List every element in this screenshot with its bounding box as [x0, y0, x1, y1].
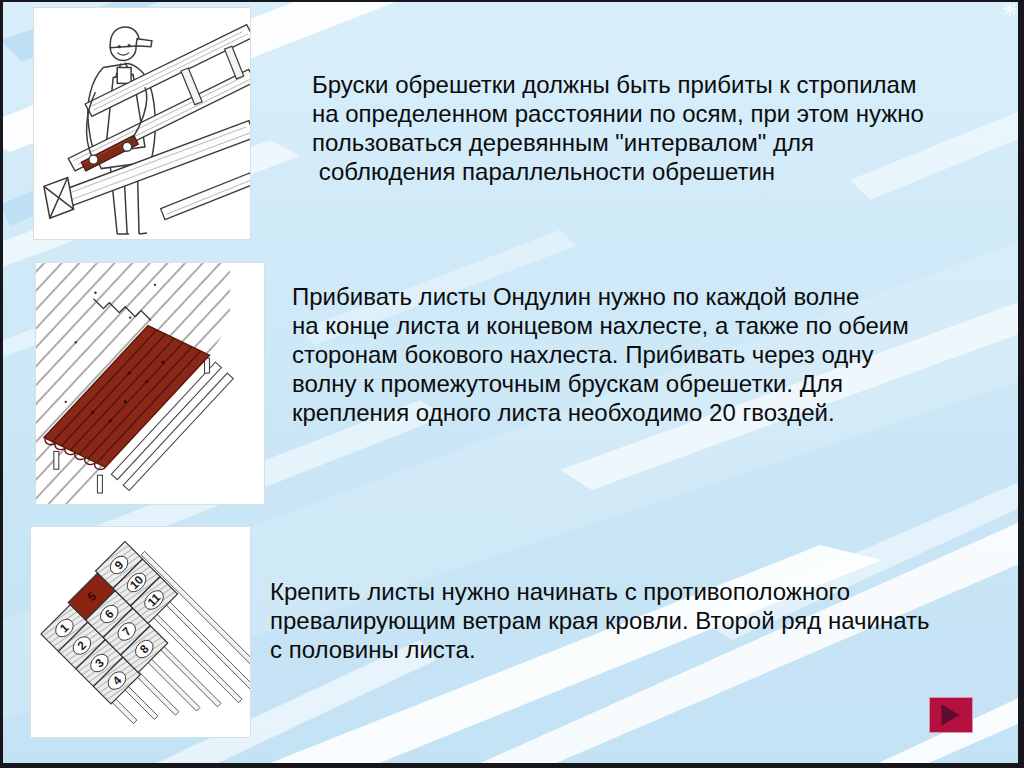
paragraph-batten-spacing: Бруски обрешетки должны быть прибиты к с…	[312, 70, 992, 186]
sheet-order-illustration: 1 2 3 4 5 6 7 8 9 10 11	[30, 526, 251, 738]
next-arrow-icon	[930, 698, 972, 732]
slide-border-left	[0, 0, 3, 768]
slide-border-bottom	[0, 763, 1024, 768]
worker-illustration	[33, 7, 251, 240]
paragraph-fixing-order: Крепить листы нужно начинать с противопо…	[270, 577, 990, 664]
ondulin-sheet-illustration	[35, 262, 265, 505]
slide-border-top	[0, 0, 1024, 2]
next-slide-button[interactable]	[929, 697, 973, 733]
sparkle-icon	[1002, 1, 1018, 17]
worker-placing-interval-board-drawing	[34, 8, 250, 239]
presentation-slide: 1 2 3 4 5 6 7 8 9 10 11 Бруски обрешетки…	[0, 0, 1024, 768]
paragraph-nailing-rules: Прибивать листы Ондулин нужно по каждой …	[292, 282, 952, 427]
ondulin-sheet-on-battens-drawing	[36, 263, 264, 504]
slide-border-right	[1018, 0, 1024, 768]
sheet-fixing-order-diagram-drawing: 1 2 3 4 5 6 7 8 9 10 11	[31, 527, 250, 737]
